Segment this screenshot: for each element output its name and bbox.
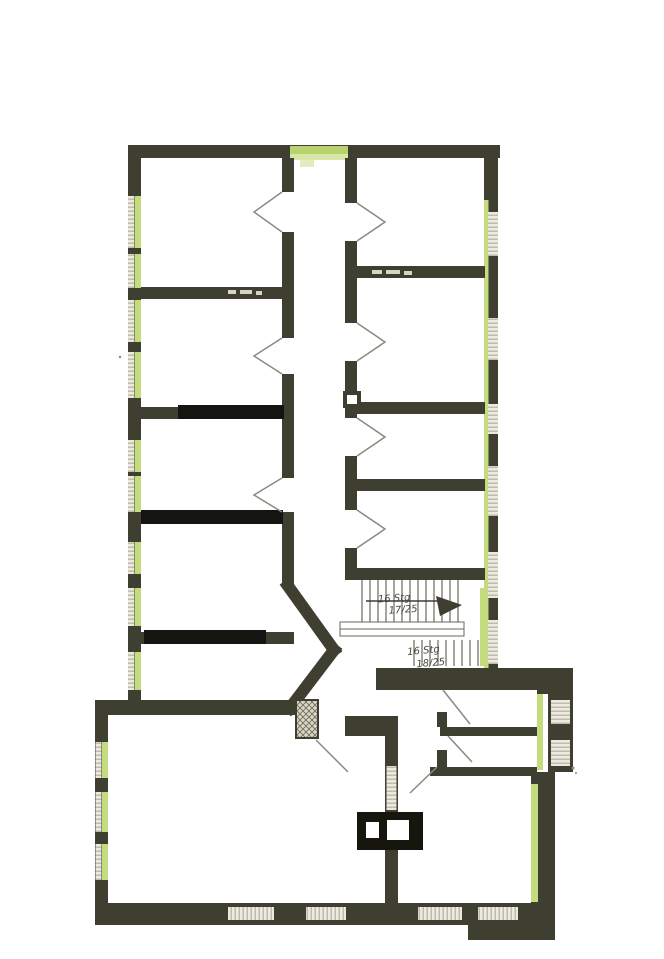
chimney	[296, 700, 318, 738]
new-wall-black	[144, 630, 266, 644]
stair-note-upper-2: 17/25	[388, 604, 418, 617]
door-right-room-4	[357, 510, 385, 548]
left-wall-windows	[128, 196, 141, 690]
door-right-room-2	[357, 323, 385, 361]
door-left-room-2	[254, 338, 282, 374]
big-room-corner-stub	[345, 716, 398, 736]
small-rooms-divider	[440, 727, 537, 736]
new-wall-black	[178, 405, 284, 419]
door-big-room	[316, 740, 348, 772]
duct-shaft	[343, 391, 361, 408]
door-bottom-right-room	[410, 767, 437, 793]
small-rooms-bottom-wall	[430, 767, 537, 776]
door-small-room-b	[448, 736, 472, 762]
new-wall-black	[141, 510, 283, 524]
hall-wall-segment	[437, 750, 447, 767]
staircase: 16 Stg 17/25 16 Stg 18/25	[340, 580, 485, 670]
annex-top-left-wall	[95, 700, 315, 715]
door-left-room-1	[254, 192, 282, 232]
room-door-swings	[254, 192, 385, 548]
top-wall-window	[290, 146, 348, 167]
door-small-room-a	[443, 690, 470, 724]
door-right-room-3	[357, 418, 385, 456]
annex-top-right-wall	[376, 668, 562, 690]
interior-walls-left	[141, 287, 294, 644]
door-left-room-3	[254, 478, 282, 512]
stair-note-lower-1: 16 Stg	[407, 644, 440, 658]
shaft-fixture	[357, 812, 423, 850]
scanned-floor-plan-page: 16 Stg 17/25 16 Stg 18/25	[0, 0, 664, 959]
lobby-chamfer-wall-upper	[288, 586, 334, 650]
stair-hall-top-wall	[345, 568, 485, 580]
door-right-room-1	[357, 203, 385, 241]
stair-note-upper-1: 16 Stg	[378, 592, 411, 605]
annex-walls	[95, 668, 573, 940]
floor-plan: 16 Stg 17/25 16 Stg 18/25	[0, 0, 664, 959]
hall-wall-segment	[437, 712, 447, 727]
small-rooms-inner-right-stub	[537, 668, 548, 694]
